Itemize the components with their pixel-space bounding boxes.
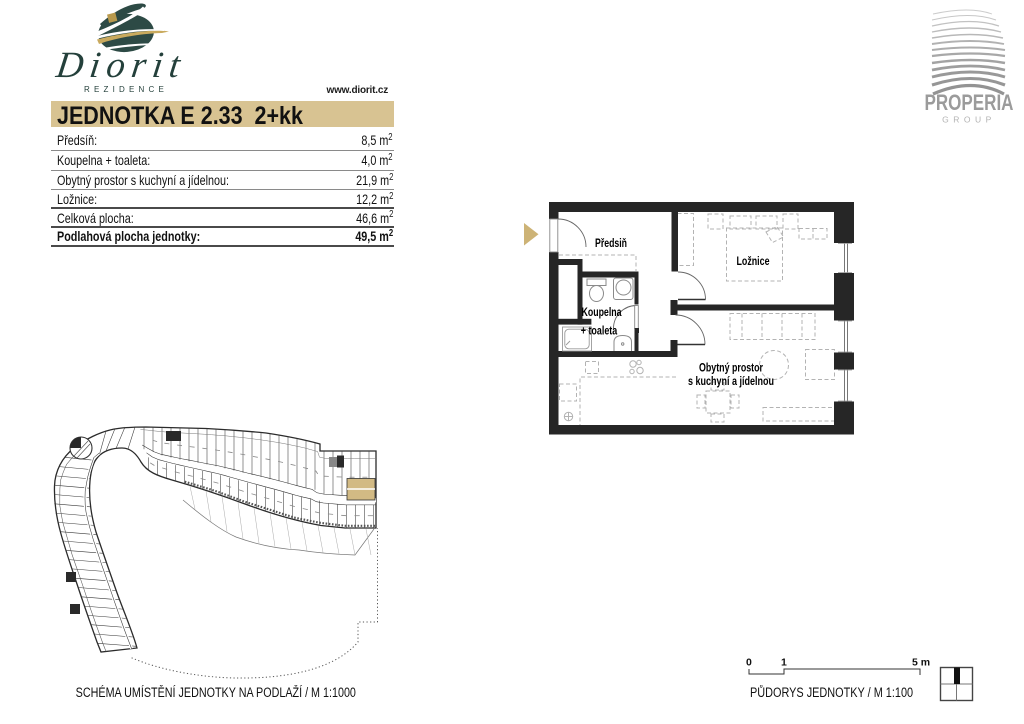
svg-text:REZIDENCE: REZIDENCE (84, 85, 168, 94)
svg-text:1: 1 (781, 657, 787, 669)
svg-text:Ložnice: Ložnice (737, 256, 770, 268)
svg-text:PROPERIA: PROPERIA (925, 90, 1014, 115)
svg-text:Diorit: Diorit (53, 45, 189, 86)
svg-text:+ toaleta: + toaleta (581, 326, 618, 338)
svg-text:Předsiň: Předsiň (595, 238, 627, 250)
svg-text:Obytný prostor: Obytný prostor (699, 363, 763, 375)
svg-text:Koupelna: Koupelna (582, 307, 622, 319)
svg-text:s kuchyní a jídelnou: s kuchyní a jídelnou (688, 376, 774, 388)
svg-text:5 m: 5 m (912, 657, 930, 669)
svg-text:GROUP: GROUP (942, 115, 996, 125)
svg-text:0: 0 (746, 657, 752, 669)
